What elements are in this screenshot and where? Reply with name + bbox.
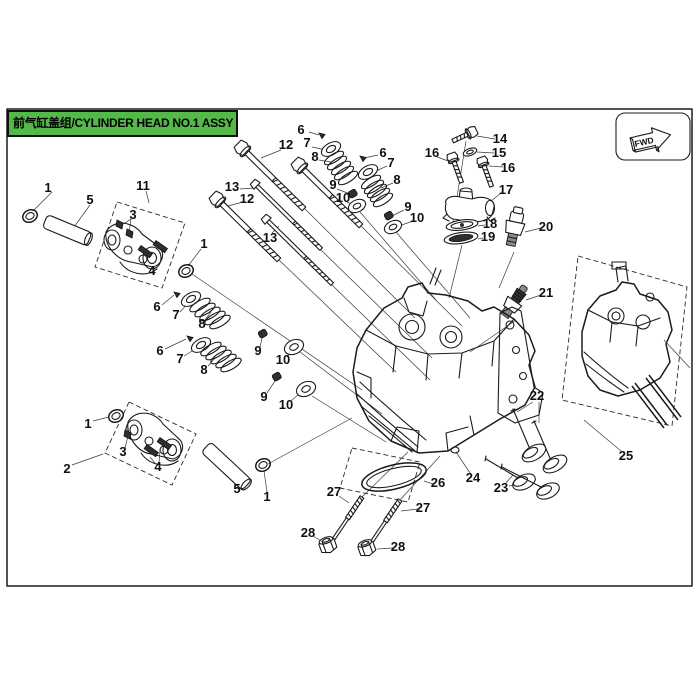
seal-ring-26-drawing [359,457,429,496]
keeper-6 [174,292,180,298]
seal-9 [272,372,282,382]
spring-seat-10 [294,378,318,399]
o-ring-1-drawings [21,207,273,473]
thermostat-18-drawing [445,218,478,232]
page-title: 前气缸盖组/CYLINDER HEAD NO.1 ASSY [13,116,233,130]
keeper-6 [360,156,366,162]
dashed-boxes [95,202,687,502]
seal-9 [348,189,358,199]
bolt-3-drawing [126,229,133,238]
seal-9 [258,329,268,339]
head-assembly-25-drawing [582,262,690,428]
parts-diagram-page: FWD [0,0,700,700]
rocker-assembly-11-drawing [104,220,167,274]
keeper-6 [319,133,325,139]
fwd-arrow-icon: FWD [629,124,674,157]
title-banner: 前气缸盖组/CYLINDER HEAD NO.1 ASSY [7,110,238,137]
sensor-20-drawing [501,205,528,247]
bolt-3-drawing [116,220,123,229]
stud-27-drawings [330,496,402,546]
gasket-19-drawing [443,230,478,246]
bolt-14-drawing [450,125,478,146]
seal-9 [384,211,394,221]
keeper-6 [187,336,193,342]
thermostat-group-drawing [443,125,497,246]
retainer-7 [319,139,343,160]
valve-guide-24-drawing [451,447,459,453]
nut-28-drawings [317,535,377,559]
rocker-assembly-2-drawing [124,413,183,465]
adjust-screw-4-drawing [144,445,158,457]
fwd-badge: FWD [616,113,690,160]
bolt-16-drawing [476,155,497,188]
box-seal-26 [340,448,420,502]
valve-spring-set-drawings [174,133,404,400]
spark-plug-21-drawing [497,282,532,321]
spring-seat-10 [382,218,403,236]
diagram-line-art: FWD [0,0,700,700]
thermostat-cover-17-drawing [443,188,495,222]
spring-seat-10 [282,336,306,357]
valve-22-drawings [511,409,570,477]
